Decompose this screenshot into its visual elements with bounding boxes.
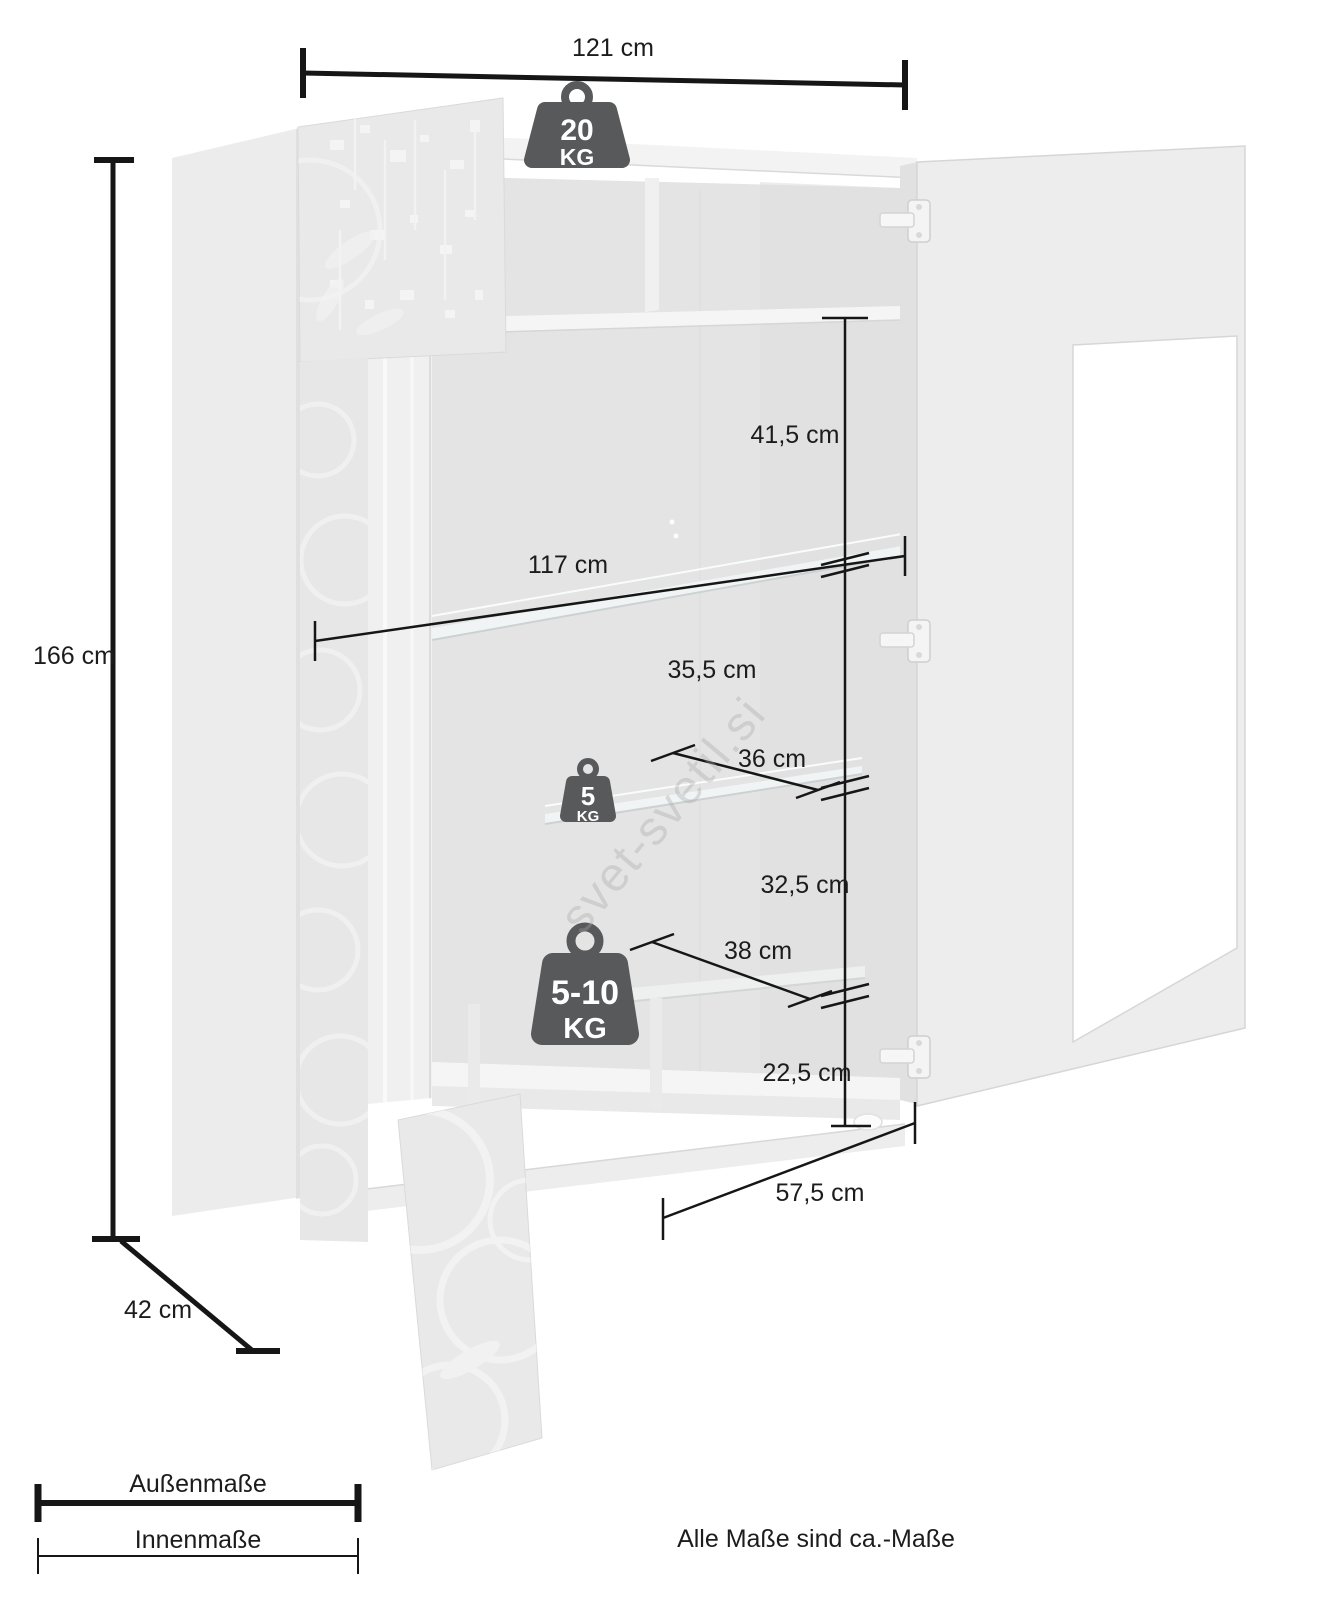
right-door-open bbox=[917, 146, 1245, 1106]
dimension-diagram-page: 20 KG 5 KG 5-10 KG 121 cm 166 cm 42 cm 4… bbox=[0, 0, 1334, 1600]
inner-width-label: 117 cm bbox=[528, 551, 608, 579]
top-divider bbox=[645, 178, 659, 312]
left-side-panel bbox=[172, 126, 308, 1216]
bottom-divider-left bbox=[468, 1004, 480, 1106]
bottom-section-height-label: 22,5 cm bbox=[763, 1059, 852, 1087]
legend: Außenmaße Innenmaße bbox=[38, 1470, 358, 1574]
middle-shelf-gap-label: 32,5 cm bbox=[761, 871, 850, 899]
upper-shelf-gap-label: 35,5 cm bbox=[668, 656, 757, 684]
weight-20kg-icon: 20 KG bbox=[532, 85, 622, 170]
outer-width-label: 121 cm bbox=[572, 34, 654, 62]
lower-shelf-depth-label: 38 cm bbox=[724, 937, 792, 965]
footnote-text: Alle Maße sind ca.-Maße bbox=[677, 1525, 955, 1553]
outer-depth-label: 42 cm bbox=[124, 1296, 192, 1324]
outer-height-dimension-line bbox=[92, 160, 140, 1239]
weight-5kg-unit: KG bbox=[577, 808, 600, 825]
weight-20kg-value: 20 bbox=[560, 114, 593, 147]
left-door-glass-strip bbox=[368, 340, 432, 1110]
weight-5-10kg-value: 5-10 bbox=[551, 974, 619, 1012]
bottom-divider-right bbox=[650, 998, 662, 1110]
outer-height-label: 166 cm bbox=[33, 642, 115, 670]
left-door-bottom-panel bbox=[350, 1094, 570, 1475]
legend-outer-label: Außenmaße bbox=[129, 1470, 267, 1498]
legend-inner-label: Innenmaße bbox=[135, 1526, 261, 1554]
weight-5kg-value: 5 bbox=[581, 781, 595, 811]
bottom-inner-width-label: 57,5 cm bbox=[776, 1179, 865, 1207]
dimension-diagram: 20 KG 5 KG 5-10 KG 121 cm 166 cm 42 cm 4… bbox=[0, 0, 1334, 1600]
weight-5-10kg-unit: KG bbox=[563, 1013, 607, 1045]
weight-20kg-unit: KG bbox=[560, 144, 595, 170]
top-section-height-label: 41,5 cm bbox=[751, 421, 840, 449]
cabinet-foot bbox=[854, 1114, 882, 1130]
